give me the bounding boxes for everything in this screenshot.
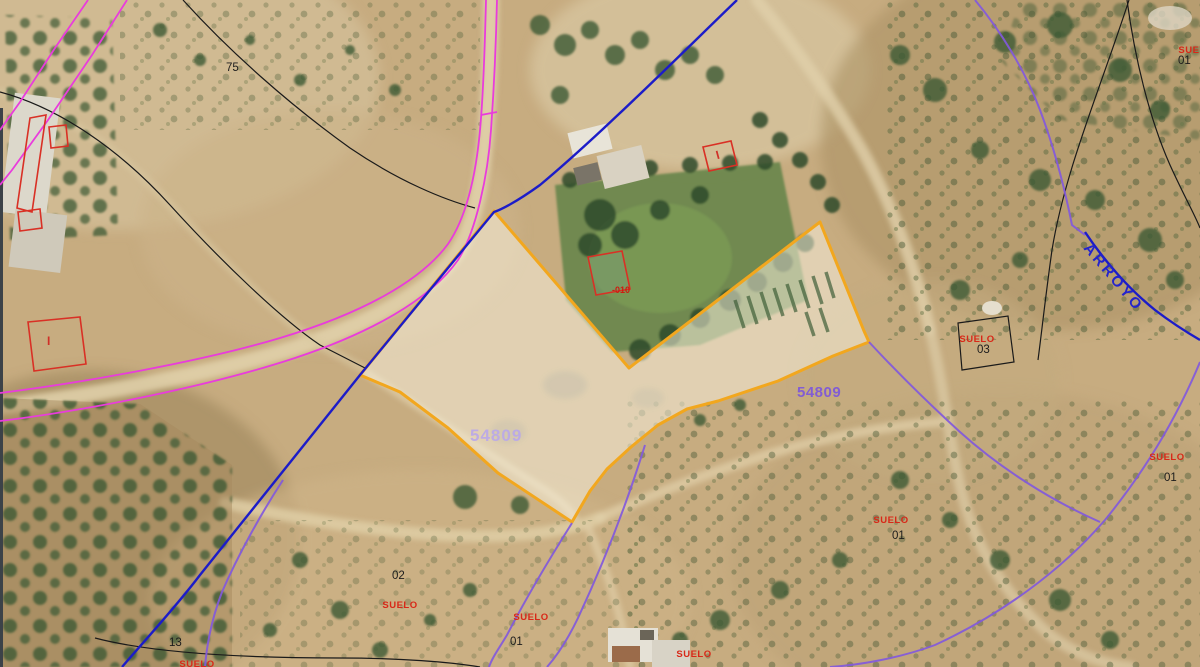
map-canvas [0,0,1200,667]
cadastral-map-viewport[interactable]: 54809 54809 ARROYO SUELO SUELO SUELO SUE… [0,0,1200,667]
image-edge-strip [0,108,3,667]
